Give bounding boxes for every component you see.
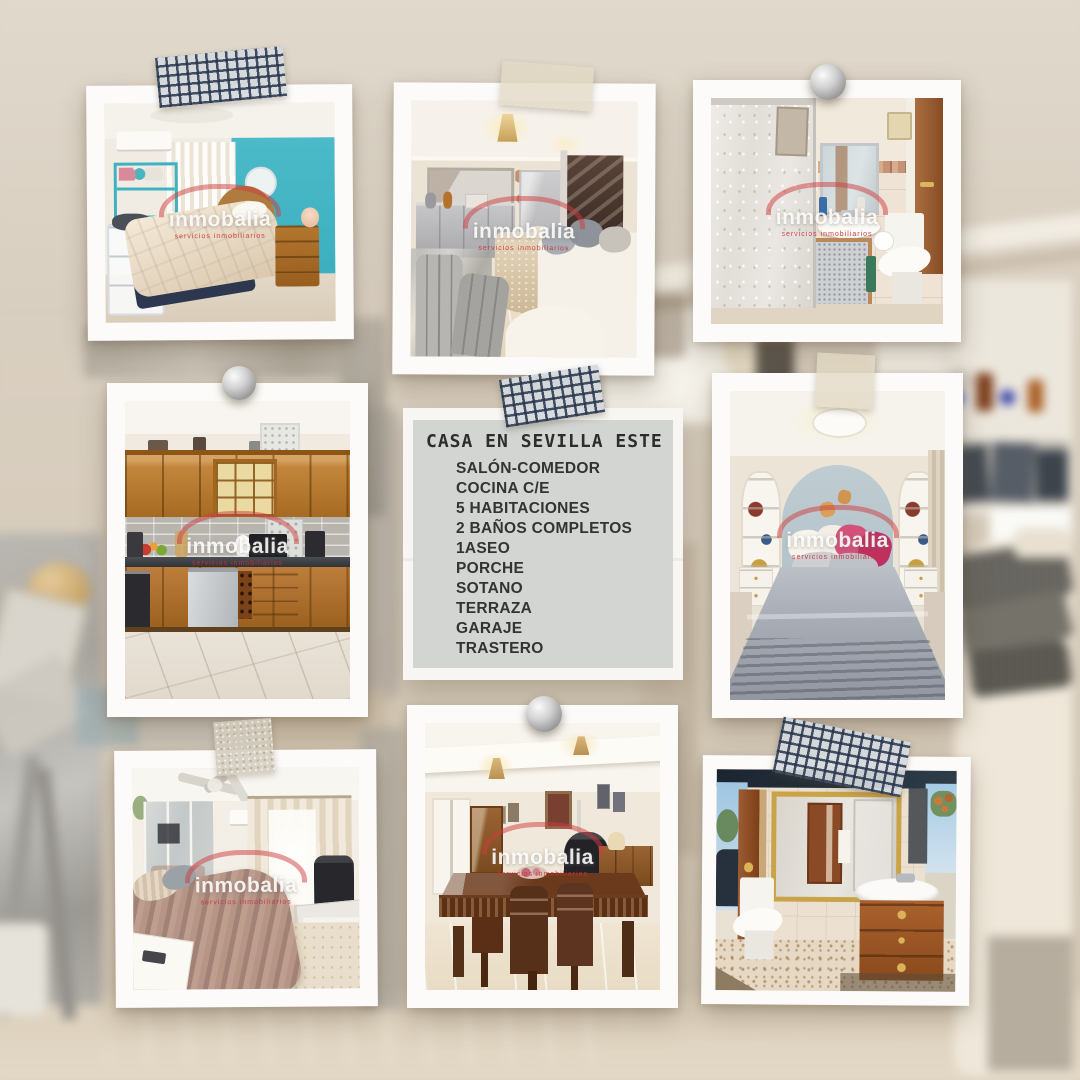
bg-bottle-amber-2 [1028, 380, 1043, 412]
storage-jar [175, 531, 189, 558]
nightstand [275, 225, 319, 287]
push-pin-icon [810, 64, 846, 100]
coffee-maker [305, 531, 325, 559]
feature-list: SALÓN-COMEDOR COCINA C/E 5 HABITACIONES … [426, 459, 660, 659]
polaroid-living-room: inmobalia servicios inmobiliarios [392, 82, 656, 375]
door-knob [744, 862, 754, 872]
bathroom-mirror [820, 143, 879, 215]
faucet [896, 873, 915, 882]
soap-bottle-2 [857, 197, 865, 215]
table-leg [453, 926, 464, 977]
hanging-towel [775, 106, 809, 156]
microwave [249, 534, 287, 560]
polaroid-dining-room: inmobalia servicios inmobiliarios [407, 705, 678, 1008]
tap [841, 210, 857, 217]
mirror-shower-reflection [853, 799, 894, 892]
toilet-base [744, 931, 773, 960]
feature-item: SALÓN-COMEDOR [456, 459, 660, 479]
photo-shower-bathroom: inmobalia servicios inmobiliarios [711, 98, 943, 324]
listing-card: CASA EN SEVILLA ESTE SALÓN-COMEDOR COCIN… [413, 420, 673, 668]
bg-blue-ornament [1000, 390, 1015, 405]
polaroid-teal-bedroom: inmobalia servicios inmobiliarios [86, 84, 354, 341]
bedside-lamp [300, 207, 319, 227]
bg-floor-streaks [108, 1003, 628, 1065]
washi-tape-icon [155, 46, 287, 108]
chair-leg [481, 953, 488, 988]
washi-tape-icon [499, 61, 594, 112]
vase [425, 193, 436, 208]
washi-tape-icon [213, 718, 275, 776]
sofa-cushion-3 [598, 226, 631, 254]
mixer [127, 532, 143, 559]
wooden-vanity [859, 901, 944, 981]
flyer-canvas: inmobalia servicios inmobiliarios [0, 0, 1080, 1080]
bedspread-stripes [730, 638, 945, 700]
washi-tape-icon [815, 353, 876, 410]
dark-reflection [840, 973, 955, 991]
tree [716, 809, 738, 842]
bg-photo-frame-2 [991, 442, 1036, 502]
polaroid-vanity-bathroom [701, 755, 971, 1006]
listing-title: CASA EN SEVILLA ESTE [426, 431, 660, 452]
polaroid-kitchen: inmobalia servicios inmobiliarios [107, 383, 368, 717]
bg-bottle-amber [976, 373, 993, 411]
small-picture-4 [613, 792, 625, 812]
feature-item: PORCHE [456, 559, 660, 579]
toilet-base [892, 272, 922, 306]
table-leg-2 [622, 921, 634, 977]
wall-vent [887, 112, 912, 141]
ceiling-fan [150, 107, 233, 123]
ceiling [125, 401, 350, 434]
photo-vanity-bathroom [715, 769, 957, 992]
granite-counter [125, 557, 350, 567]
feature-item: SOTANO [456, 579, 660, 599]
wardrobe-reflection-tv [157, 824, 180, 844]
chair-back-2 [557, 883, 593, 966]
grey-chair-2 [451, 272, 511, 358]
towel [839, 830, 851, 863]
photo-kitchen: inmobalia servicios inmobiliarios [125, 401, 350, 699]
drawer-stack [253, 569, 298, 627]
small-picture-3 [597, 784, 611, 809]
bg-chair-seat [0, 923, 48, 1015]
feature-item: GARAJE [456, 619, 660, 639]
mirror-door-reflection [807, 803, 843, 885]
feature-item: COCINA C/E [456, 479, 660, 499]
wine-rack [238, 571, 253, 619]
photo-master-bedroom: inmobalia servicios inmobiliarios [730, 391, 945, 700]
push-pin-icon [222, 366, 256, 400]
polaroid-master-bedroom: inmobalia servicios inmobiliarios [712, 373, 963, 718]
dark-pane [908, 788, 928, 863]
push-pin-icon [526, 696, 562, 732]
photo-teal-bedroom: inmobalia servicios inmobiliarios [104, 102, 336, 323]
bg-dark-corner [988, 936, 1072, 1071]
feature-item: 2 BAÑOS COMPLETOS [456, 519, 660, 539]
screen-rail [711, 98, 813, 105]
polaroid-fan-bedroom: inmobalia servicios inmobiliarios [114, 749, 378, 1008]
bg-photo-frame-3 [1036, 450, 1068, 500]
polaroid-shower-bathroom: inmobalia servicios inmobiliarios [693, 80, 961, 342]
framed-picture [545, 791, 572, 829]
flowering-shrub [930, 791, 957, 818]
photo-fan-bedroom: inmobalia servicios inmobiliarios [132, 767, 360, 990]
tiled-floor [125, 632, 350, 699]
glass-cabinet [213, 459, 278, 519]
feature-item: 5 HABITACIONES [456, 499, 660, 519]
photo-living-room: inmobalia servicios inmobiliarios [410, 100, 637, 357]
soap-bottle [819, 197, 827, 215]
feature-item: TRASTERO [456, 639, 660, 659]
table-lamp [608, 832, 624, 849]
feature-item: TERRAZA [456, 599, 660, 619]
angel-figurine-2 [836, 489, 851, 505]
door-handle [920, 182, 934, 188]
vase-2 [443, 191, 452, 208]
chair-back [510, 886, 549, 974]
toiletry-bottle-2 [866, 256, 875, 292]
dishwasher [188, 568, 238, 633]
feature-item: 1ASEO [456, 539, 660, 559]
shelf-trinkets [118, 167, 164, 180]
sideboard-frames [465, 194, 487, 209]
chair-leg-3 [571, 966, 578, 990]
display-cabinet [470, 806, 503, 874]
chair-leg-2 [528, 971, 536, 990]
air-conditioner [116, 132, 171, 152]
listing-card-sheet: CASA EN SEVILLA ESTE SALÓN-COMEDOR COCIN… [403, 408, 683, 680]
photo-dining-room: inmobalia servicios inmobiliarios [425, 723, 660, 990]
small-picture-2 [508, 803, 519, 822]
bg-cream-pillow [1014, 528, 1070, 558]
